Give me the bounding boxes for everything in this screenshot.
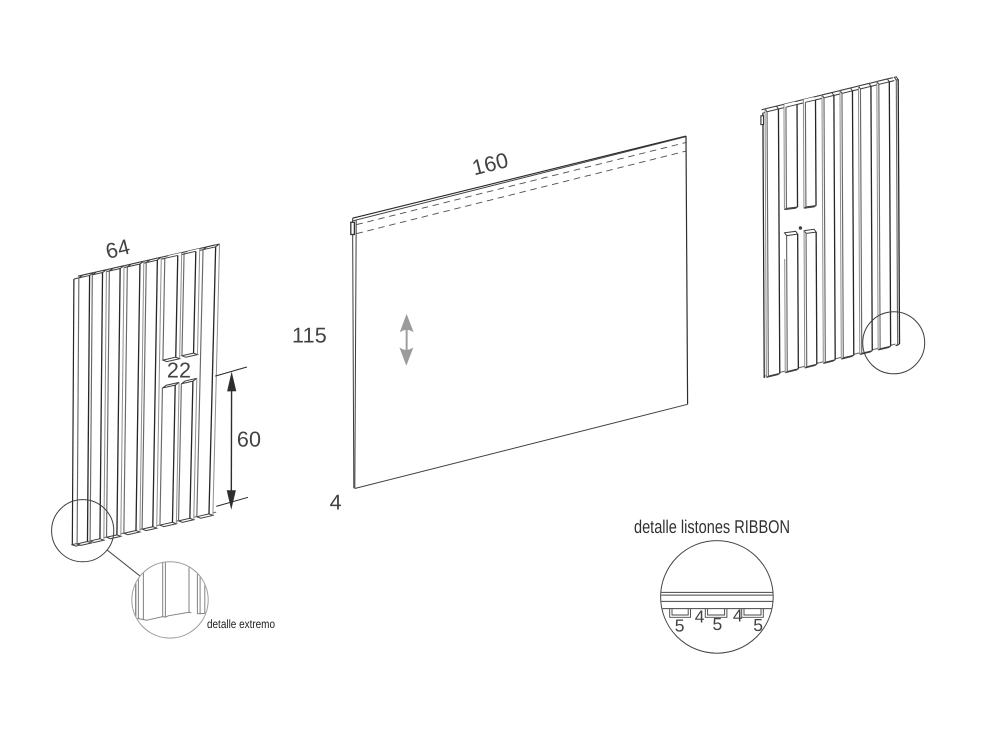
svg-text:4: 4 [733,606,743,626]
svg-text:5: 5 [713,614,723,634]
svg-text:detalle extremo: detalle extremo [207,617,275,631]
svg-text:115: 115 [292,323,327,347]
svg-text:60: 60 [237,428,261,452]
svg-text:detalle listones RIBBON: detalle listones RIBBON [634,516,790,537]
svg-text:22: 22 [167,359,191,383]
svg-text:4: 4 [330,491,342,515]
svg-text:4: 4 [695,606,705,626]
svg-text:5: 5 [753,615,763,635]
svg-text:5: 5 [675,616,685,636]
